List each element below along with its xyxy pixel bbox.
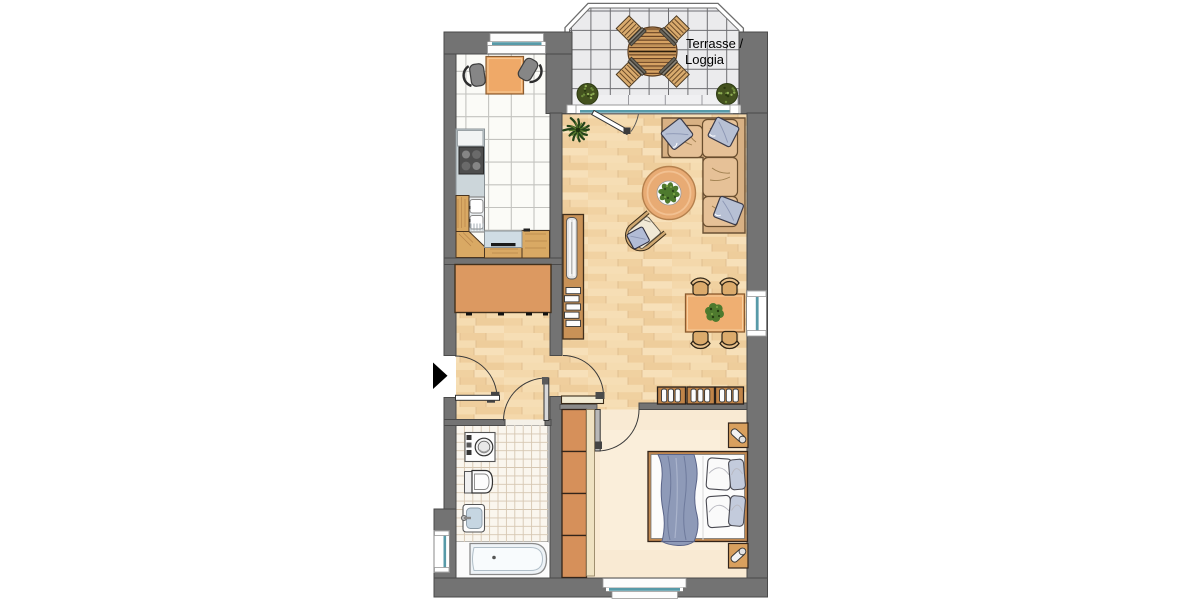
svg-text:Terrasse /: Terrasse / [686, 36, 743, 51]
svg-text:Loggia: Loggia [685, 52, 725, 67]
